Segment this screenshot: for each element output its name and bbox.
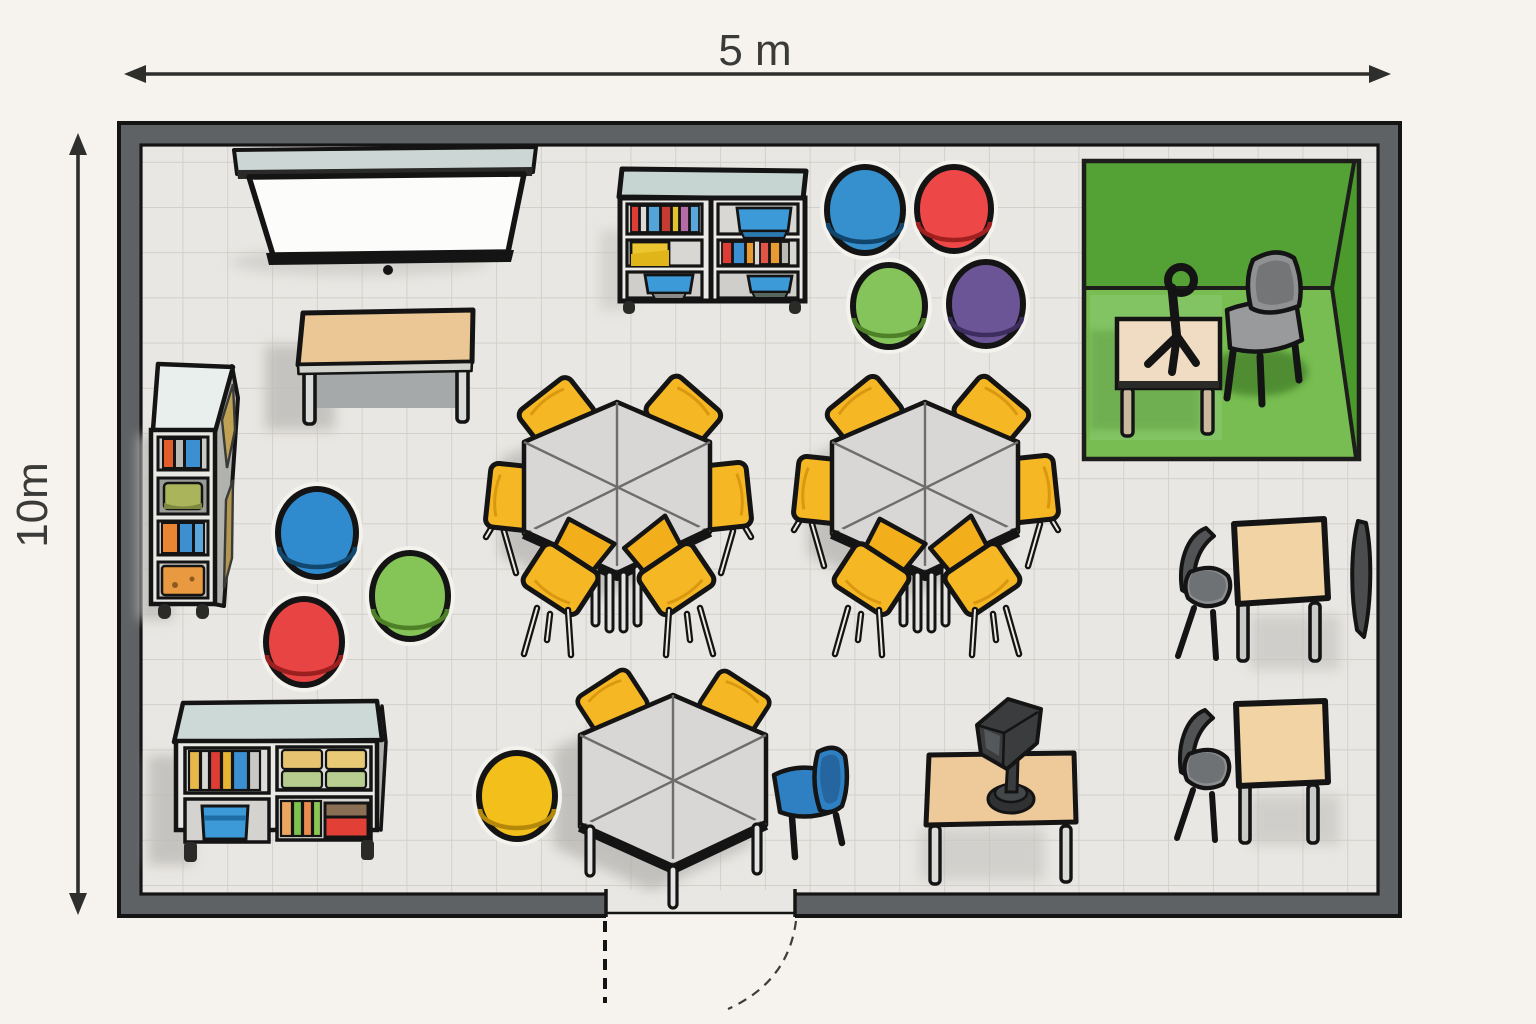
svg-text:10m: 10m [8, 462, 57, 548]
svg-text:5 m: 5 m [718, 26, 791, 75]
